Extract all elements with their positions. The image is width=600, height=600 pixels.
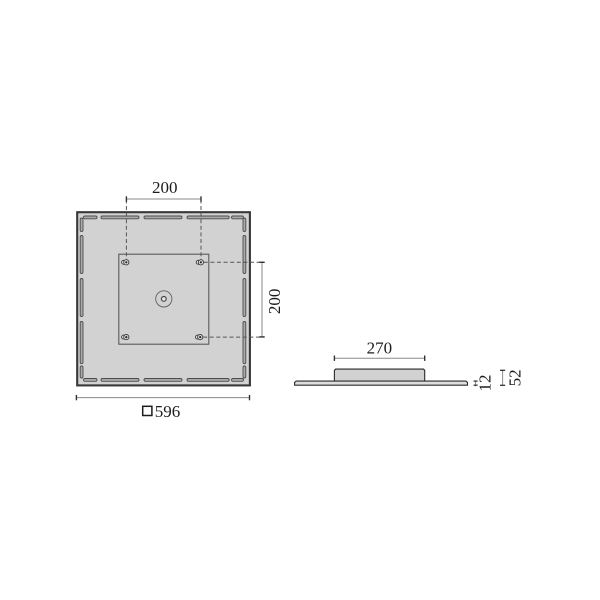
svg-text:12: 12	[476, 375, 495, 392]
svg-text:200: 200	[265, 289, 284, 315]
svg-text:270: 270	[367, 338, 393, 357]
svg-text:596: 596	[155, 402, 181, 421]
svg-text:200: 200	[152, 178, 178, 197]
svg-text:52: 52	[506, 369, 525, 386]
